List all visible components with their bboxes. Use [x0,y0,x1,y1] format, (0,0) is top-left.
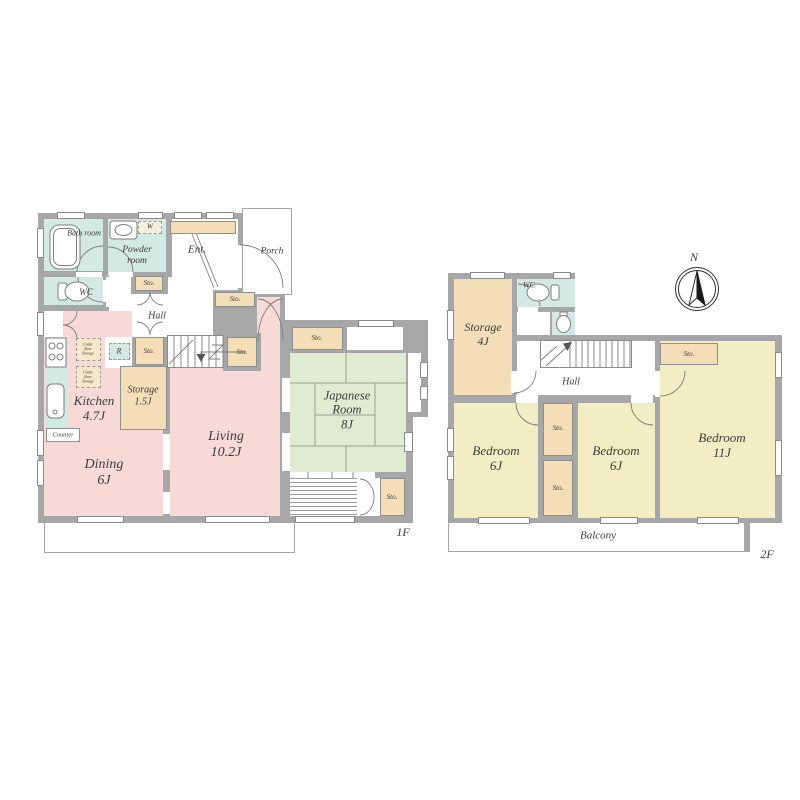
washbasin-2f [552,312,575,335]
window [206,212,234,219]
window [358,320,394,327]
window [447,310,454,340]
door-gap [237,245,242,288]
sto-label: Sto. [553,424,564,432]
underfloor-label: Under floor Storage [81,370,95,383]
north-label: N [690,251,698,265]
sto-label: Sto. [230,295,241,303]
window [775,352,782,378]
window [205,516,270,523]
window [37,312,44,336]
sto-label: Sto. [553,484,564,492]
window [57,212,85,219]
room-area: 4.7J [59,409,129,424]
opening [163,492,170,514]
stairs-2f [540,340,632,368]
room-name: Bedroom [472,443,519,458]
room-area: 8J [316,417,378,431]
window [447,456,454,480]
storage-2f-label: Storage 4J [456,321,510,349]
sto-label: Sto. [684,350,695,358]
dining-label: Dining 6J [64,457,144,489]
door-gap [511,371,518,393]
room-name: Kitchen [74,393,114,408]
room-area: 1.5J [121,396,165,408]
window [697,517,739,524]
opening [282,433,290,471]
window [600,517,638,524]
sto-label: Sto. [237,348,248,356]
opening [282,378,290,412]
balcony-post [744,523,750,552]
window [420,362,428,378]
sto-label: Sto. [144,347,155,355]
window [37,460,44,486]
room-name: Storage [127,385,158,396]
underfloor-label: Under floor Storage [81,342,95,355]
door-gap [631,395,653,403]
room-name: Bedroom [698,430,745,445]
window [420,386,428,400]
door-gap [109,272,133,277]
window [470,272,505,279]
room-area: 4J [456,335,510,349]
room-name: Storage [464,320,501,334]
window [37,228,44,258]
floor-plan-canvas: Bath room Powder room WC Ent. Porch Hall… [0,0,800,800]
japanese-room-label: Japanese Room 8J [316,388,378,431]
corridor-1f [44,311,63,337]
hall-1f-label: Hall [148,310,166,322]
room-name: Bedroom [592,443,639,458]
sto-label: Sto. [144,279,155,287]
engawa-curtain-area [357,478,375,516]
kitchen-label: Kitchen 4.7J [59,394,129,424]
alcove-japanese [347,327,403,350]
room-area: 6J [581,459,651,474]
living-label: Living 10.2J [186,429,266,461]
powder-label: Powder room [113,245,161,267]
balcony-label: Balcony [580,530,616,543]
compass-inner-ring [678,270,716,308]
room-area: 6J [461,459,531,474]
opening [163,434,170,470]
bathroom-label: Bath room [65,228,103,237]
wc-1f-label: WC [79,287,93,297]
room-area: 11J [687,446,757,461]
room-name: Dining [85,457,124,472]
window [404,432,413,452]
bedroom-center-label: Bedroom 6J [581,444,651,474]
door-gap [518,307,538,312]
window [174,212,202,219]
floor2-tag: 2F [760,548,773,562]
storage-1f-label: Storage 1.5J [121,385,165,408]
door-gap [516,395,538,403]
window [37,430,44,456]
window [775,440,782,476]
room-area: 10.2J [186,445,266,461]
floor1-tag: 1F [396,526,409,540]
window [447,428,454,452]
stairs-1f [167,335,225,368]
room-wc-1f [44,277,103,305]
terrace-outline [44,523,295,553]
fridge-label: R [117,346,122,355]
sto-label: Sto. [387,493,398,501]
bedroom-right-label: Bedroom 11J [687,431,757,461]
window [553,272,571,279]
shoe-cabinet [170,221,236,234]
window [478,517,530,524]
window [295,516,355,523]
porch-label: Porch [261,247,284,258]
washer-label: W [147,223,153,232]
door-gap [103,280,108,302]
counter-label: Counter [52,431,73,438]
entrance-label: Ent. [188,244,206,257]
vestibule-2f [517,312,550,335]
room-name: Living [208,429,244,444]
bedroom-left-label: Bedroom 6J [461,444,531,474]
door-gap [655,371,660,397]
hall-2f-label: Hall [562,376,580,388]
wc-2f-label: WC [523,280,535,289]
room-bathroom [44,219,103,271]
room-name: Japanese Room [324,388,371,416]
sto-label: Sto. [312,334,323,342]
window [138,212,163,219]
window [77,516,124,523]
door-gap [76,272,102,277]
room-area: 6J [64,473,144,489]
